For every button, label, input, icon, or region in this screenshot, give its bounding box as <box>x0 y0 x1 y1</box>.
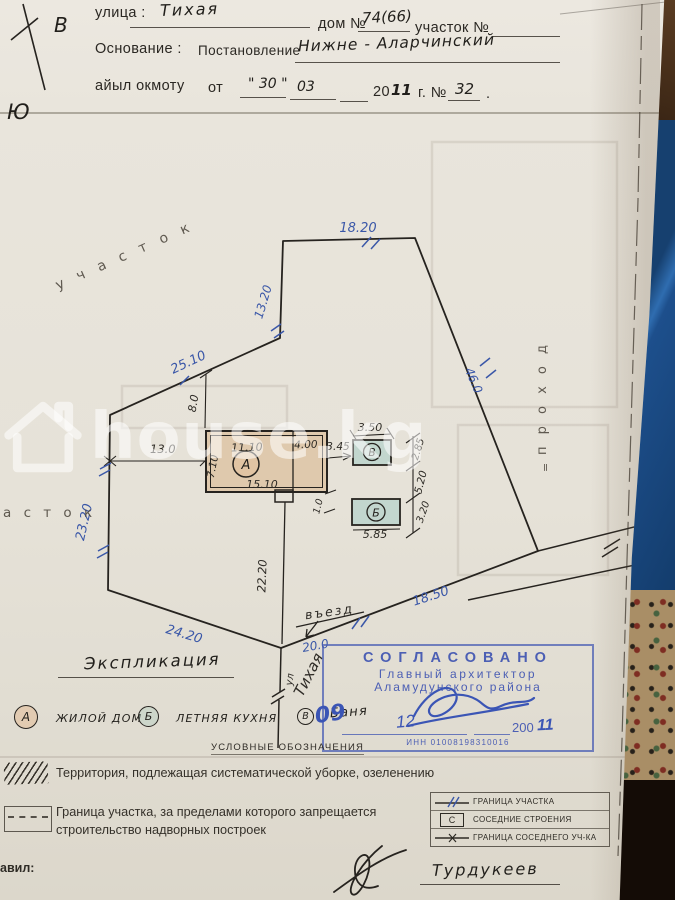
surveyor-signature <box>322 840 432 900</box>
compass-east: В <box>54 13 68 37</box>
label-passage-mark: = <box>539 463 552 472</box>
legend-key-v: В <box>297 708 314 725</box>
dim-b-top: 3.50 <box>358 421 383 434</box>
legend-key-b: Б <box>138 706 159 727</box>
hatch-label: Территория, подлежащая систематической у… <box>56 764 496 782</box>
stamp-year-printed: 200 <box>512 720 534 735</box>
stamp-dateline-1 <box>342 734 467 735</box>
legend-label-b: ЛЕТНЯЯ КУХНЯ <box>176 712 277 725</box>
legend-row-neighbor-boundary: ГРАНИЦА СОСЕДНЕГО УЧ-КА <box>431 828 609 846</box>
explication-underline <box>58 677 234 678</box>
dashed-label: Граница участка, за пределами которого з… <box>56 803 448 840</box>
dim-gap-b-c: 5.20 <box>412 469 429 495</box>
surveyor-underline <box>420 884 560 885</box>
dim-house-offset-w: 13.0 <box>150 442 176 456</box>
building-b-letter: Б <box>372 507 380 520</box>
dashed-boundary-swatch-icon <box>4 806 52 832</box>
conventions-title: УСЛОВНЫЕ ОБОЗНАЧЕНИЯ <box>211 742 364 755</box>
compass-south: Ю <box>7 100 30 124</box>
building-v-letter: В <box>368 447 375 459</box>
dim-c-bottom: 5.85 <box>363 528 388 541</box>
hatch-swatch-icon <box>4 761 49 785</box>
dim-yard: 22.20 <box>254 559 269 592</box>
stamp-day: 09 <box>313 700 347 729</box>
dim-top: 18.20 <box>339 221 376 236</box>
building-bath-v: В <box>353 440 391 465</box>
plot-boundary-symbol-icon <box>433 795 471 808</box>
legend-key-a: А <box>14 705 38 729</box>
dim-a-w2: 4.00 <box>294 439 318 452</box>
dim-gap-a-b: 3.45 <box>326 441 350 453</box>
label-passage: п р о х о д <box>535 341 550 455</box>
dim-c-side: 3.20 <box>415 500 433 525</box>
legend-row-boundary: ГРАНИЦА УЧАСТКА <box>431 793 609 810</box>
stamp-year-hand: 11 <box>537 717 555 736</box>
legend-row-neighbor-boundary-label: ГРАНИЦА СОСЕДНЕГО УЧ-КА <box>473 833 597 842</box>
neighbor-building-symbol-icon: С <box>440 813 464 827</box>
legend-row-neighbor-buildings: С СОСЕДНИЕ СТРОЕНИЯ <box>431 810 609 828</box>
boundary-legend-table: ГРАНИЦА УЧАСТКА С СОСЕДНИЕ СТРОЕНИЯ ГРАН… <box>430 792 610 847</box>
compass-arrow-icon <box>11 4 45 90</box>
stamp-month: 12 <box>395 711 416 733</box>
stamp-dateline-2 <box>474 734 510 735</box>
dim-sw: 24.20 <box>164 622 204 647</box>
label-plot-left: а с т о к <box>3 505 96 521</box>
yard-dimension-line <box>282 502 285 644</box>
stamp-title: СОГЛАСОВАНО <box>324 650 592 666</box>
dim-a-porch: 1.0 <box>311 498 325 515</box>
building-kitchen-b: Б <box>352 499 400 525</box>
approval-stamp: СОГЛАСОВАНО Главный архитектор Аламудунс… <box>322 644 594 752</box>
street-line <box>271 648 285 748</box>
made-by-label: авил: <box>0 861 34 875</box>
dim-ne: 13.20 <box>251 283 275 320</box>
dim-house-offset-n: 8.0 <box>186 394 202 413</box>
stamp-inn: ИНН 01008198310016 <box>324 738 592 747</box>
dim-a-w1: 11.10 <box>231 440 263 454</box>
legend-row-neighbor-buildings-label: СОСЕДНИЕ СТРОЕНИЯ <box>473 815 572 824</box>
dim-a-total: 15.10 <box>246 478 278 491</box>
surveyor-name: Турдукеев <box>432 859 539 880</box>
scanned-site-plan-photo: улица : Тихая дом № 74(66) участок № Осн… <box>0 0 675 900</box>
legend-row-boundary-label: ГРАНИЦА УЧАСТКА <box>473 797 554 806</box>
dim-south: 18.50 <box>411 584 451 610</box>
legend-label-a: ЖИЛОЙ ДОМ <box>56 712 142 725</box>
label-plot-top: у ч а с т о к <box>53 218 196 294</box>
building-a-letter: А <box>241 458 251 473</box>
dim-east: 46.0 <box>462 365 485 395</box>
document-paper: улица : Тихая дом № 74(66) участок № Осн… <box>0 0 675 900</box>
neighbor-boundary-symbol-icon <box>433 831 471 844</box>
